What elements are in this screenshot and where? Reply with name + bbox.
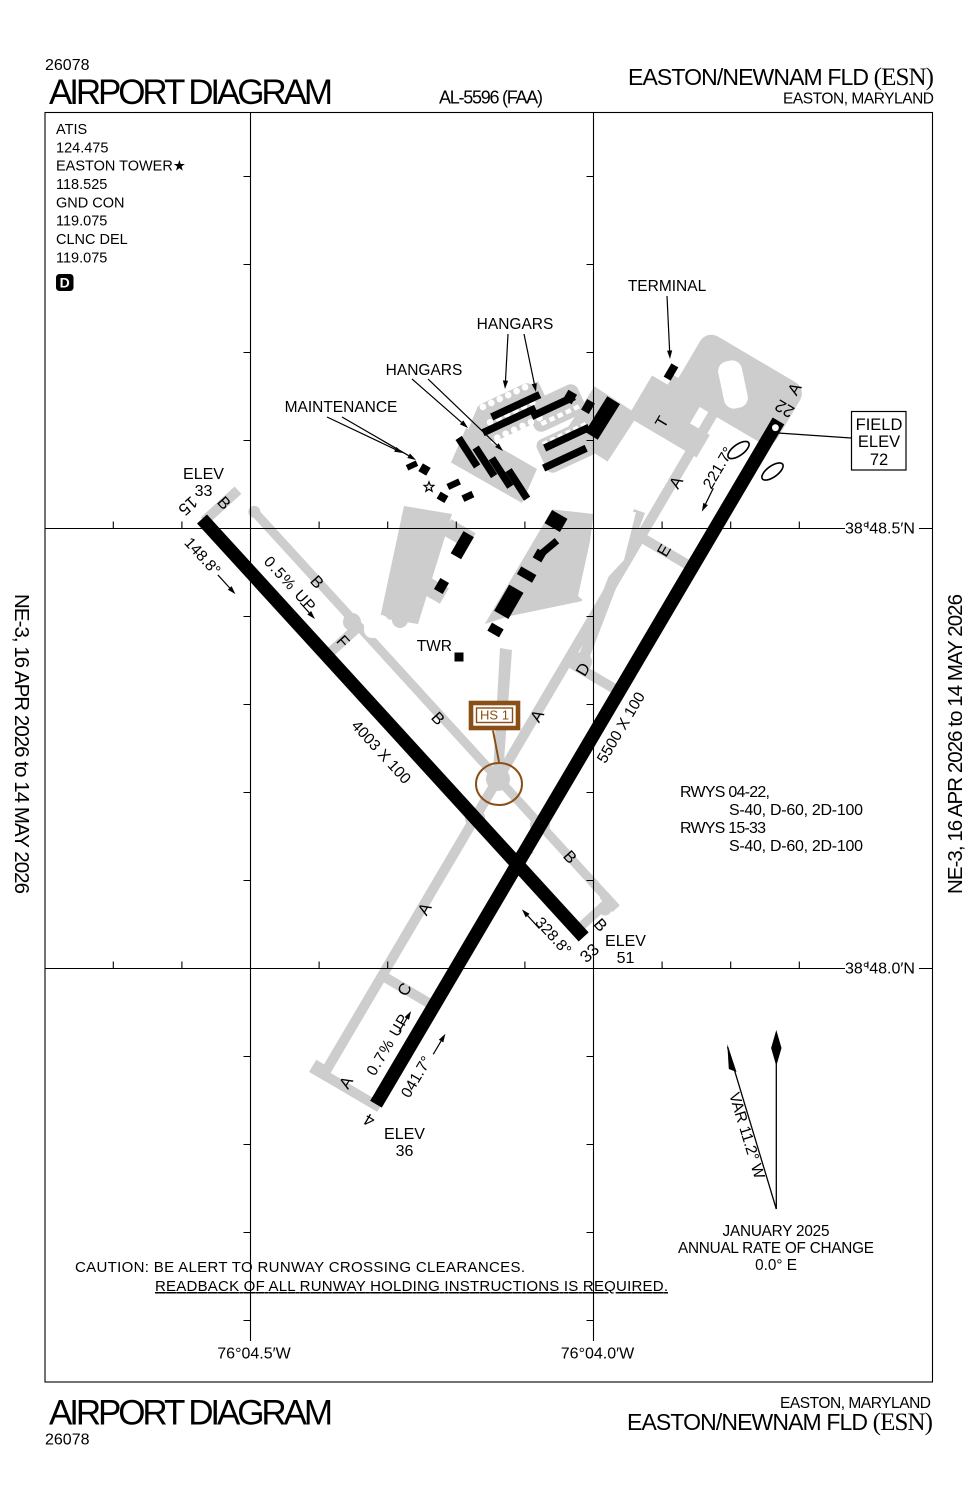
svg-text:33: 33 — [195, 483, 213, 500]
svg-text:HS 1: HS 1 — [480, 708, 509, 723]
svg-text:ELEV: ELEV — [605, 933, 646, 950]
svg-text:ELEV: ELEV — [384, 1126, 425, 1143]
svg-text:MAINTENANCE: MAINTENANCE — [285, 399, 398, 416]
svg-text:72: 72 — [870, 451, 888, 469]
svg-text:ELEV: ELEV — [858, 433, 900, 451]
svg-text:EASTON, MARYLAND: EASTON, MARYLAND — [783, 91, 934, 108]
svg-text:AIRPORT DIAGRAM: AIRPORT DIAGRAM — [49, 73, 333, 112]
svg-text:NE-3, 16 APR 2026 to 14 MAY: NE-3, 16 APR 2026 to 14 MAY 2026 — [944, 594, 967, 894]
svg-text:ELEV: ELEV — [183, 466, 224, 483]
svg-text:HANGARS: HANGARS — [477, 316, 554, 333]
svg-text:EASTON TOWER★: EASTON TOWER★ — [56, 159, 186, 175]
svg-text:0.0° E: 0.0° E — [755, 1257, 797, 1274]
svg-text:AIRPORT DIAGRAM: AIRPORT DIAGRAM — [49, 1394, 333, 1433]
svg-text:HANGARS: HANGARS — [386, 362, 463, 379]
svg-text:FIELD: FIELD — [856, 416, 903, 434]
svg-text:S-40, D-60, 2D-100: S-40, D-60, 2D-100 — [729, 838, 863, 855]
svg-text:36: 36 — [396, 1143, 414, 1160]
svg-text:118.525: 118.525 — [56, 177, 107, 193]
svg-text:CAUTION: BE ALERT TO RUNWAY CR: CAUTION: BE ALERT TO RUNWAY CROSSING CLE… — [75, 1259, 525, 1276]
svg-text:CLNC DEL: CLNC DEL — [56, 232, 128, 248]
svg-text:119.075: 119.075 — [56, 214, 107, 230]
svg-text:26078: 26078 — [45, 1432, 90, 1449]
svg-text:ATIS: ATIS — [56, 122, 87, 138]
svg-text:38°48.0′N: 38°48.0′N — [845, 961, 915, 978]
svg-text:51: 51 — [617, 950, 635, 967]
svg-text:ANNUAL RATE OF CHANGE: ANNUAL RATE OF CHANGE — [678, 1240, 874, 1257]
svg-text:76°04.5′W: 76°04.5′W — [217, 1346, 291, 1363]
svg-text:AL-5596 (FAA): AL-5596 (FAA) — [439, 88, 543, 108]
svg-text:38°48.5′N: 38°48.5′N — [845, 521, 915, 538]
svg-text:26078: 26078 — [45, 57, 90, 74]
svg-text:NE-3, 16 APR 2026 to 14 MAY: NE-3, 16 APR 2026 to 14 MAY 2026 — [10, 594, 33, 894]
svg-text:76°04.0′W: 76°04.0′W — [561, 1346, 635, 1363]
svg-text:TWR: TWR — [417, 638, 452, 655]
svg-text:RWYS 15-33: RWYS 15-33 — [680, 820, 766, 837]
svg-text:119.075: 119.075 — [56, 250, 107, 266]
svg-text:S-40, D-60, 2D-100: S-40, D-60, 2D-100 — [729, 802, 863, 819]
svg-text:RWYS 04-22,: RWYS 04-22, — [680, 784, 770, 801]
svg-text:READBACK OF ALL RUNWAY HOLDING: READBACK OF ALL RUNWAY HOLDING INSTRUCTI… — [155, 1278, 668, 1295]
svg-text:JANUARY 2025: JANUARY 2025 — [723, 1223, 830, 1240]
svg-text:EASTON/NEWNAM FLD (ESN): EASTON/NEWNAM FLD (ESN) — [627, 1409, 933, 1436]
svg-text:TERMINAL: TERMINAL — [628, 278, 707, 295]
svg-text:GND CON: GND CON — [56, 195, 124, 211]
svg-text:D: D — [60, 275, 70, 291]
svg-text:EASTON/NEWNAM FLD (ESN): EASTON/NEWNAM FLD (ESN) — [628, 64, 934, 91]
svg-text:124.475: 124.475 — [56, 140, 108, 156]
